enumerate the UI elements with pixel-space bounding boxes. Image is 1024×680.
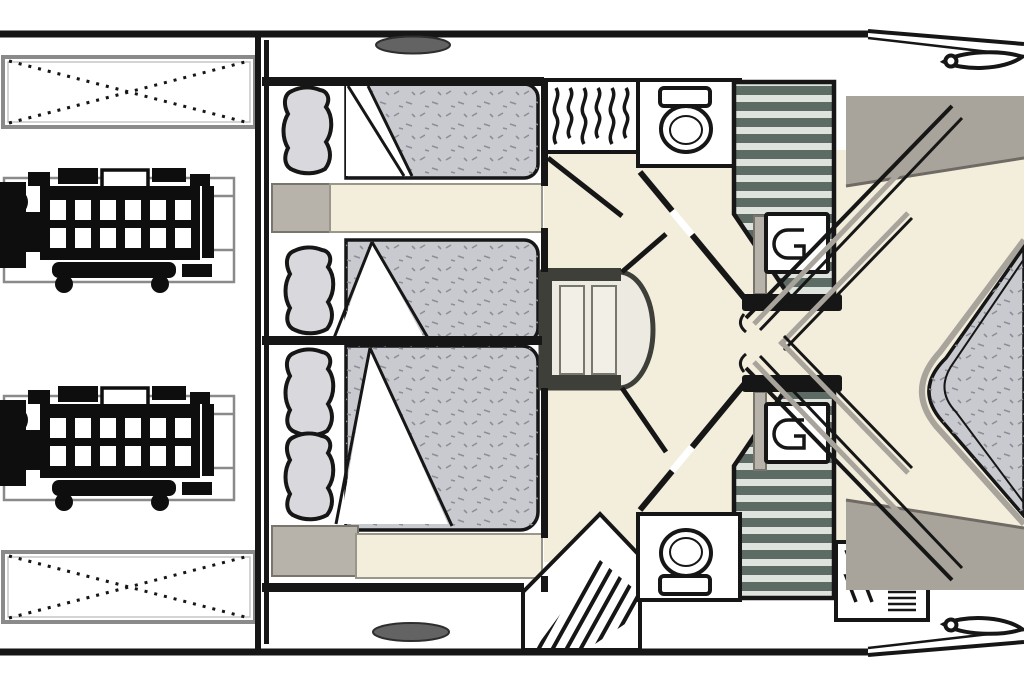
bow-window-forward	[944, 50, 1023, 71]
pillow-icon	[286, 433, 334, 519]
toilet-icon	[660, 530, 711, 594]
engine-room	[0, 36, 269, 652]
stairs-central	[541, 268, 653, 388]
bathroom-forward	[638, 80, 740, 166]
double-cabin-bed	[286, 346, 539, 530]
pillow-icon	[284, 87, 332, 173]
porthole-forward	[376, 37, 450, 54]
twin-cabin-walkway	[330, 184, 542, 232]
wardrobe-forward	[543, 80, 642, 152]
dresser	[272, 526, 358, 576]
bulkhead	[255, 36, 261, 652]
pillow-icon	[286, 349, 334, 435]
porthole-aft	[373, 623, 449, 641]
guest-cabins-midship	[262, 84, 544, 584]
engine-starboard	[0, 386, 234, 511]
twin-cabin-bed-aft	[286, 240, 539, 342]
engine-port	[0, 168, 234, 293]
pillow-icon	[286, 247, 334, 333]
twin-cabin-bed-forward	[284, 84, 539, 178]
toilet-icon	[660, 88, 711, 152]
double-cabin-walkway	[356, 534, 542, 578]
crossed-service-box	[3, 552, 255, 622]
crossed-service-box	[3, 57, 255, 127]
bathroom-aft	[638, 514, 740, 600]
nightstand	[272, 184, 330, 232]
bulkhead	[264, 40, 269, 644]
bow-window-aft	[944, 616, 1023, 637]
yacht-lower-deck-plan	[0, 0, 1024, 680]
